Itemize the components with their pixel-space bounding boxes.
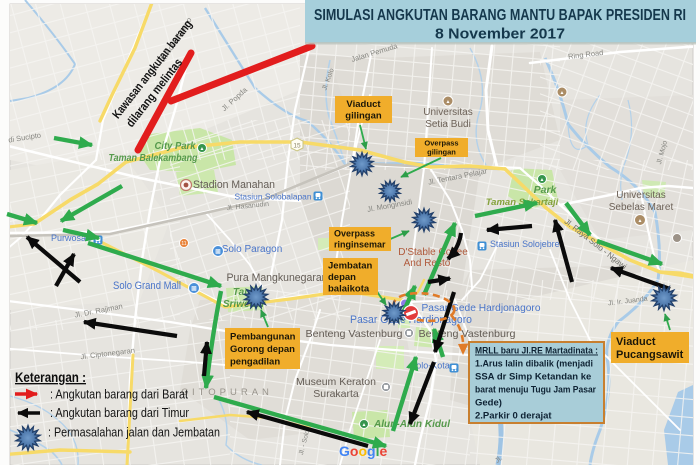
svg-text:Stadion Manahan: Stadion Manahan (193, 179, 275, 191)
svg-text:SSA dr Simp Ketandan ke: SSA dr Simp Ketandan ke (475, 372, 591, 383)
svg-text:15: 15 (293, 143, 301, 150)
svg-text:Gede): Gede) (475, 398, 502, 409)
svg-text:Pasar Gede Hardjonagoro: Pasar Gede Hardjonagoro (422, 303, 541, 314)
svg-text:1.Arus lalin dibalik (menjadi: 1.Arus lalin dibalik (menjadi (475, 359, 593, 370)
svg-text:: Angkutan barang dari Barat: : Angkutan barang dari Barat (50, 388, 188, 402)
svg-text:Setia Budi: Setia Budi (425, 119, 471, 130)
svg-text:MRLL baru Jl.RE Martadinata :: MRLL baru Jl.RE Martadinata : (475, 346, 598, 357)
svg-text:Museum Keraton: Museum Keraton (296, 376, 376, 388)
svg-text:depan: depan (328, 272, 356, 283)
svg-text:barat menuju Tugu Jam Pasar: barat menuju Tugu Jam Pasar (475, 385, 596, 396)
svg-text:Gorong depan: Gorong depan (230, 344, 295, 355)
svg-text:Overpass: Overpass (334, 229, 375, 239)
svg-text:▲: ▲ (560, 90, 565, 96)
svg-text:Stasiun Solobalapan: Stasiun Solobalapan (235, 192, 312, 202)
svg-text:▲: ▲ (540, 177, 545, 183)
svg-text:gilingan: gilingan (345, 111, 382, 122)
svg-text:Viaduct: Viaduct (346, 99, 381, 110)
svg-text:: Angkutan barang dari Timur: : Angkutan barang dari Timur (50, 406, 189, 420)
svg-text:And Resto: And Resto (404, 258, 451, 269)
svg-text:SIMULASI ANGKUTAN BARANG MANTU: SIMULASI ANGKUTAN BARANG MANTU BAPAK PRE… (314, 7, 686, 24)
svg-text:Universitas: Universitas (423, 107, 472, 118)
svg-text:▩: ▩ (191, 286, 197, 292)
svg-text:Solo Grand Mall: Solo Grand Mall (113, 280, 181, 292)
svg-text:Jembatan: Jembatan (328, 260, 373, 271)
svg-text:Solo Paragon: Solo Paragon (222, 244, 283, 255)
svg-text:Keterangan :: Keterangan : (15, 370, 86, 385)
svg-text:Taman Balekambang: Taman Balekambang (109, 153, 198, 164)
svg-text:balaikota: balaikota (328, 283, 370, 294)
svg-text:ringinsemar: ringinsemar (334, 240, 386, 250)
svg-text:Viaduct: Viaduct (616, 336, 656, 348)
svg-text:Universitas: Universitas (616, 190, 665, 201)
svg-text:Sebelas Maret: Sebelas Maret (609, 202, 674, 213)
svg-text:2.Parkir 0 derajat: 2.Parkir 0 derajat (475, 411, 552, 422)
svg-text:▲: ▲ (446, 99, 451, 105)
svg-text:8 November 2017: 8 November 2017 (435, 26, 565, 43)
svg-text:Pura Mangkunegaran: Pura Mangkunegaran (227, 272, 328, 284)
svg-text:pengadilan: pengadilan (230, 356, 280, 367)
svg-text:▩: ▩ (215, 249, 221, 255)
svg-text:Pembangunan: Pembangunan (230, 331, 296, 342)
svg-text:CITOPURAN: CITOPURAN (181, 387, 273, 398)
svg-text:11: 11 (181, 241, 186, 247)
svg-text:Pucangsawit: Pucangsawit (616, 349, 684, 361)
svg-text:: Permasalahan jalan dan Jemba: : Permasalahan jalan dan Jembatan (48, 426, 220, 440)
svg-text:Benteng Vastenburg: Benteng Vastenburg (306, 328, 403, 340)
svg-text:Surakarta: Surakarta (313, 388, 359, 400)
svg-text:▲: ▲ (638, 218, 643, 224)
svg-text:gilingan: gilingan (427, 148, 456, 157)
svg-text:▲: ▲ (200, 146, 205, 152)
svg-text:Stasiun Solojebres: Stasiun Solojebres (490, 239, 564, 250)
svg-text:▲: ▲ (362, 422, 367, 428)
svg-text:Overpass: Overpass (424, 139, 458, 148)
svg-text:City Park: City Park (155, 140, 197, 152)
svg-text:Park: Park (534, 184, 558, 196)
